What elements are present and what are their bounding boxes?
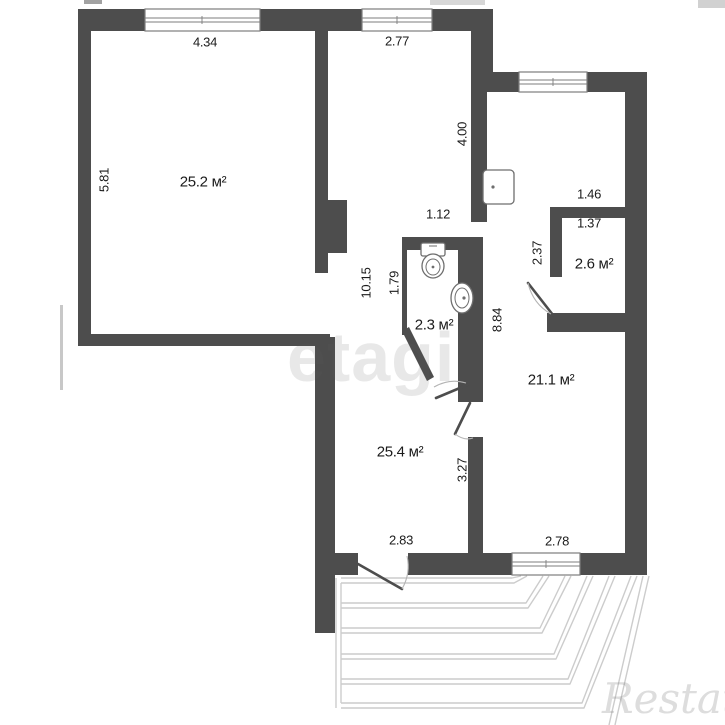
dimension-label: 2.83	[389, 533, 413, 548]
dimension-label: 2.77	[385, 34, 409, 49]
floorplan-svg: 4.342.775.8125.2 м²4.001.121.461.372.372…	[0, 0, 725, 725]
kitchen-sink-icon	[483, 170, 514, 204]
dimension-label: 2.78	[545, 534, 569, 549]
doors	[358, 283, 553, 589]
door-room-21	[455, 403, 473, 439]
window-top-right	[519, 72, 587, 92]
wall-left-lower	[315, 337, 335, 633]
wall-bath-diagonal	[402, 327, 434, 381]
wall-pier	[328, 200, 347, 253]
dimension-label: 3.27	[455, 458, 470, 482]
window-4-34	[145, 9, 260, 31]
room-area-label: 2.3 м²	[415, 317, 454, 334]
dimension-label: 1.37	[577, 216, 601, 231]
dimension-label: 1.79	[387, 271, 402, 295]
dimension-label: 1.46	[577, 187, 601, 202]
toilet-icon	[421, 243, 445, 278]
window-2-77	[362, 9, 432, 31]
wall-right-exterior	[625, 92, 647, 567]
dimension-label: 2.37	[530, 241, 545, 265]
bathroom-sink-icon	[451, 283, 473, 313]
dimension-label: 4.00	[455, 122, 470, 146]
dimension-label: 5.81	[97, 168, 112, 192]
dimension-label: 1.12	[426, 207, 450, 222]
room-area-label: 25.2 м²	[180, 174, 227, 191]
wall-closet-bottom	[547, 313, 627, 332]
wall-closet-left	[550, 218, 562, 277]
wall-room1-bottom	[78, 334, 330, 346]
wall-corridor-lower	[468, 437, 483, 553]
dimension-label: 4.34	[193, 35, 217, 50]
room-area-label: 2.6 м²	[575, 256, 614, 273]
floorplan-image: 4.342.775.8125.2 м²4.001.121.461.372.372…	[0, 0, 725, 725]
room-area-label: 21.1 м²	[528, 372, 575, 389]
wall-bath-right	[458, 250, 483, 402]
room-area-label: 25.4 м²	[377, 444, 424, 461]
dimension-label: 10.15	[359, 267, 374, 298]
wall-left	[78, 9, 91, 346]
balcony-stairs	[336, 576, 649, 725]
labels-layer: 4.342.775.8125.2 м²4.001.121.461.372.372…	[97, 34, 614, 549]
dimension-label: 8.84	[490, 308, 505, 332]
wall-room1-right	[315, 31, 328, 273]
door-closet	[528, 283, 553, 315]
window-2-78	[512, 553, 580, 575]
wall-bath-left	[402, 245, 407, 335]
